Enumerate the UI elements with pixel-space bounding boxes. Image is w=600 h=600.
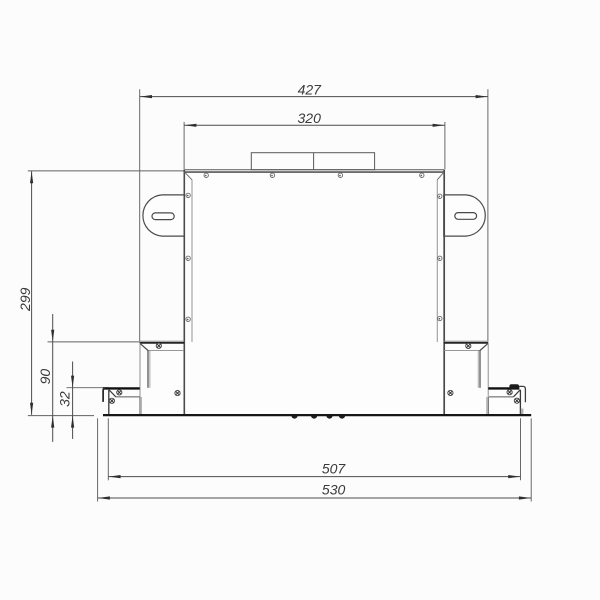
- svg-text:530: 530: [322, 481, 346, 497]
- svg-text:507: 507: [322, 460, 347, 476]
- svg-text:299: 299: [17, 287, 33, 312]
- svg-text:320: 320: [298, 110, 322, 126]
- svg-text:427: 427: [298, 81, 323, 97]
- svg-text:90: 90: [37, 369, 53, 385]
- svg-text:32: 32: [57, 391, 73, 407]
